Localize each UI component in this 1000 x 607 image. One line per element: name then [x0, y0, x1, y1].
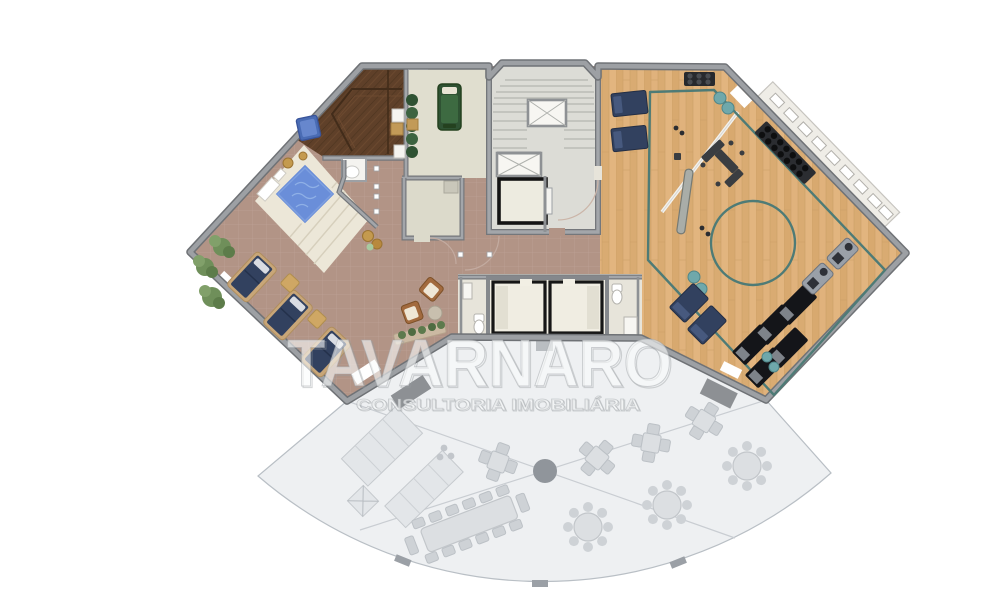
svg-text:CONSULTORIA IMOBILIÁRIA: CONSULTORIA IMOBILIÁRIA	[356, 397, 640, 414]
svg-text:TAVARNARO: TAVARNARO	[287, 326, 672, 401]
